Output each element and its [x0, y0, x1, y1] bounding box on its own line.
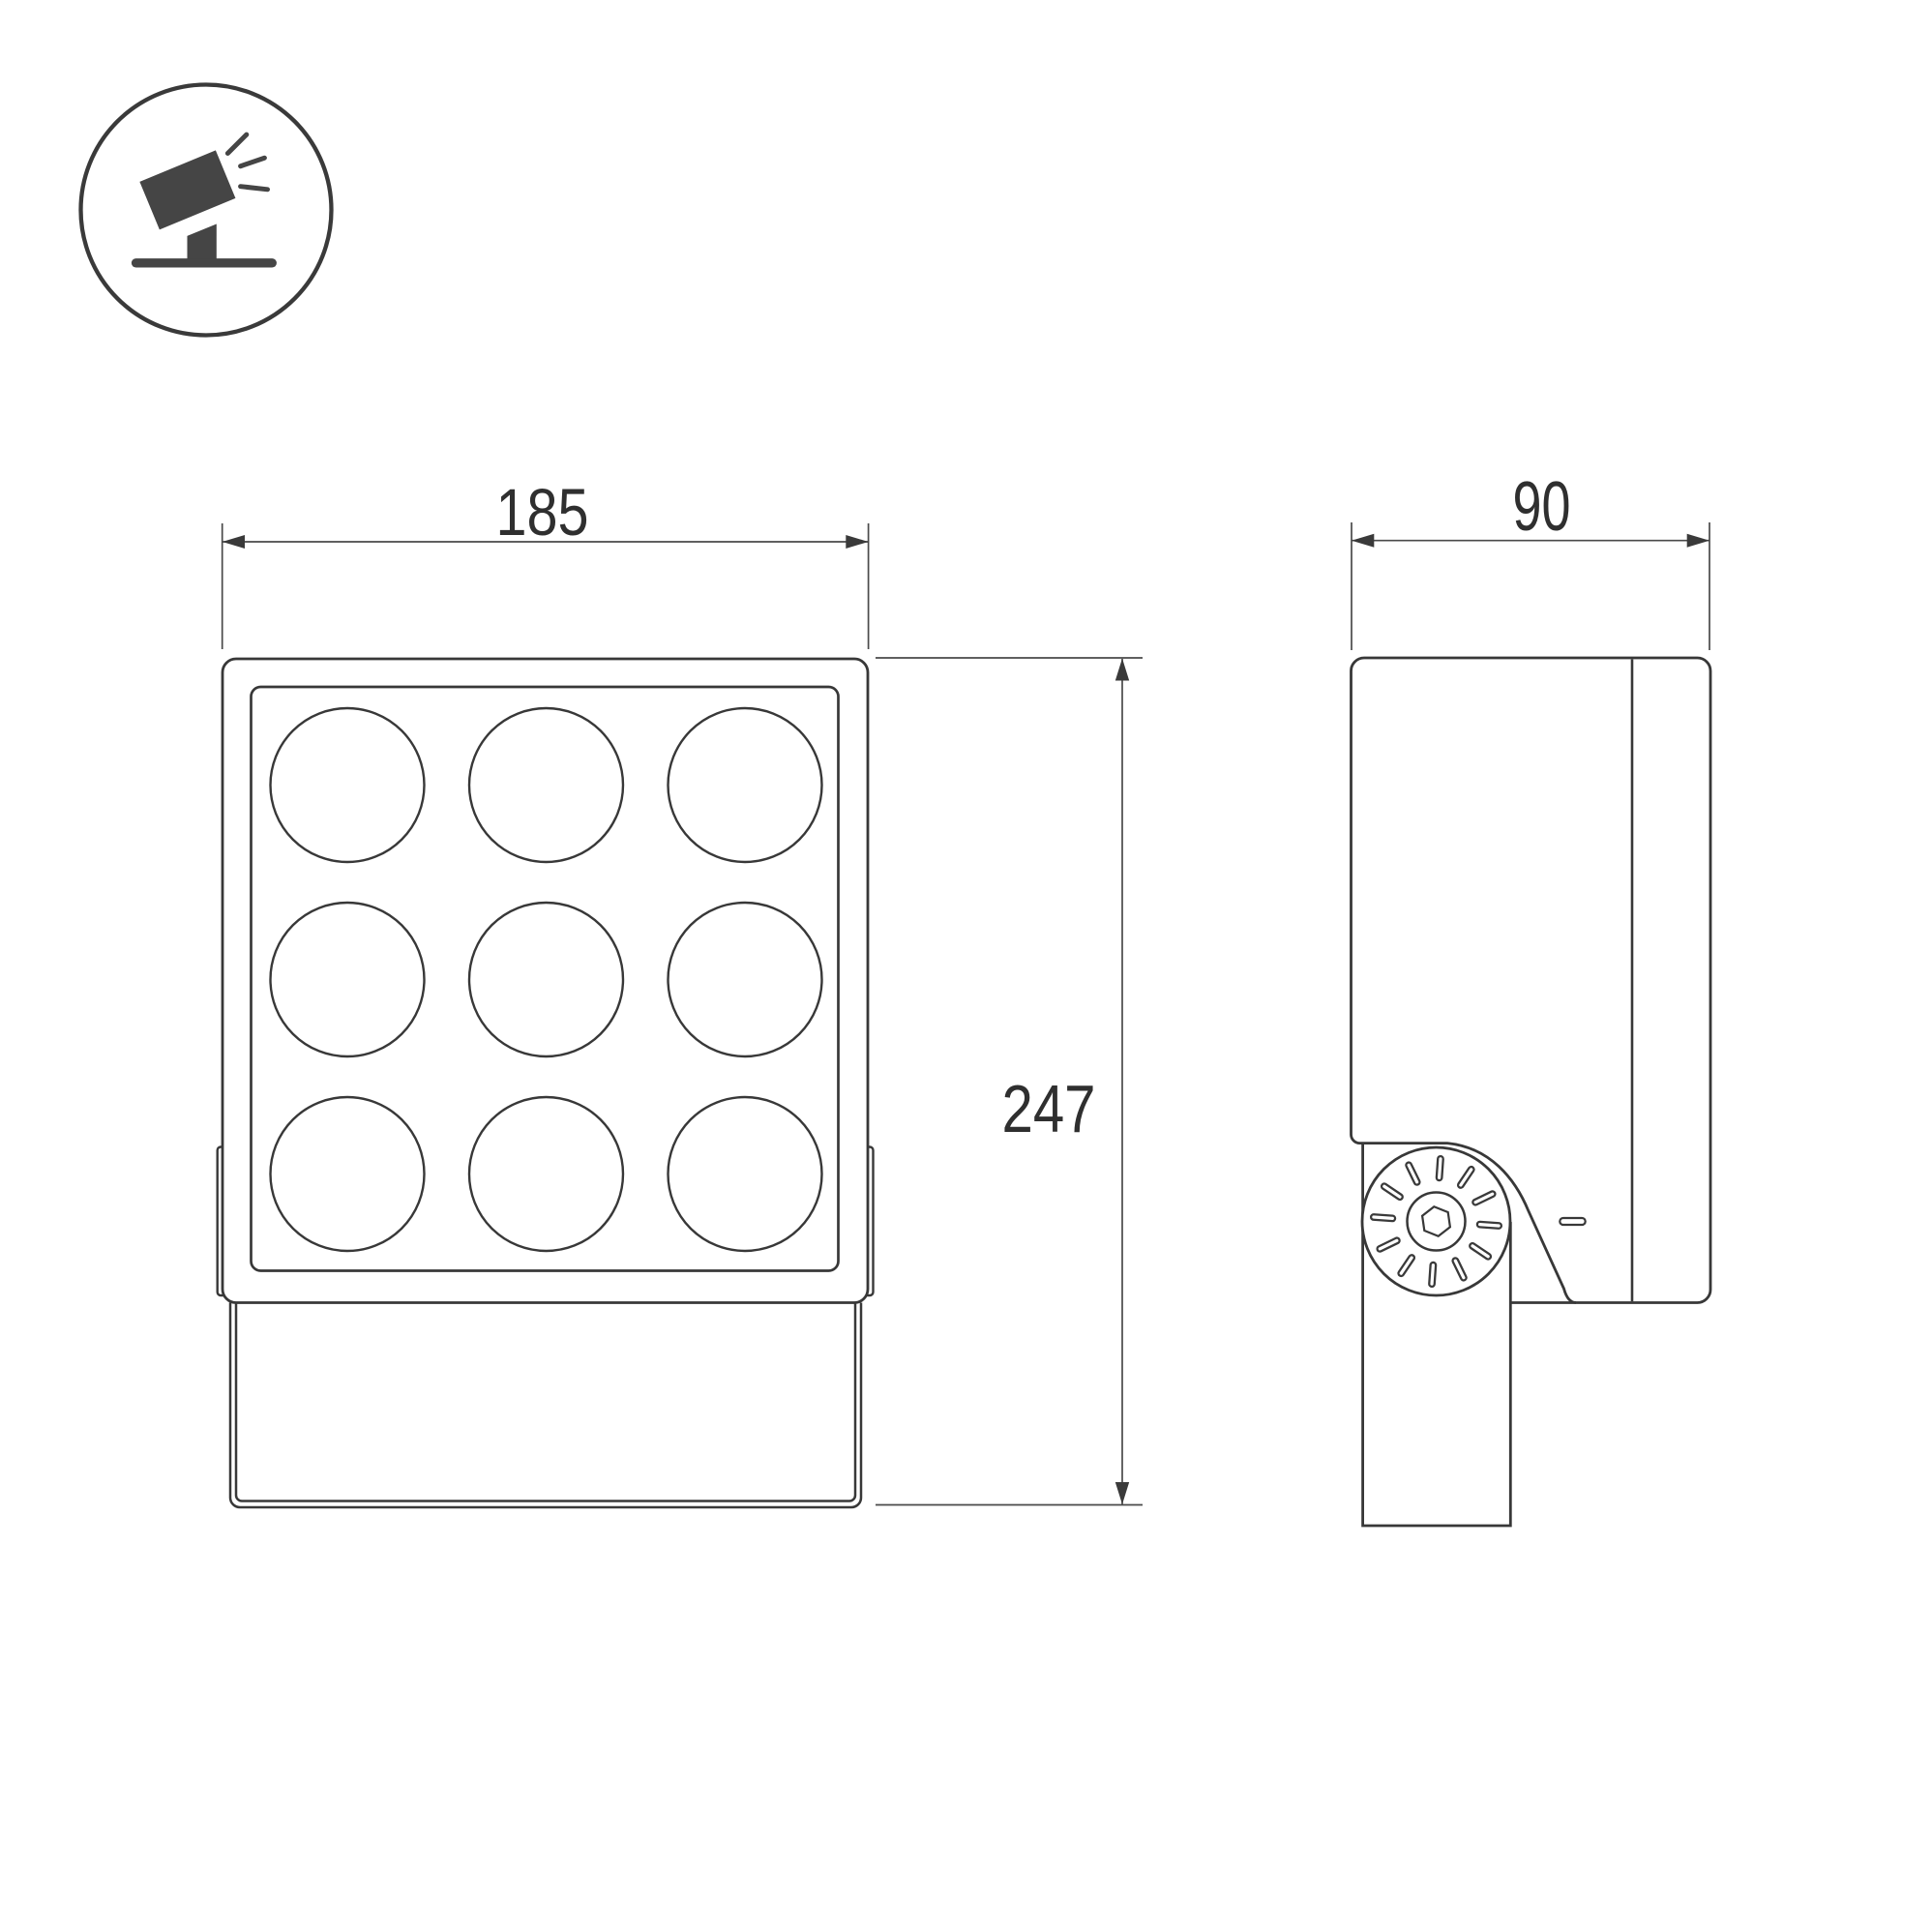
- svg-text:90: 90: [1513, 468, 1571, 546]
- svg-text:247: 247: [1002, 1071, 1096, 1146]
- svg-text:185: 185: [496, 475, 589, 550]
